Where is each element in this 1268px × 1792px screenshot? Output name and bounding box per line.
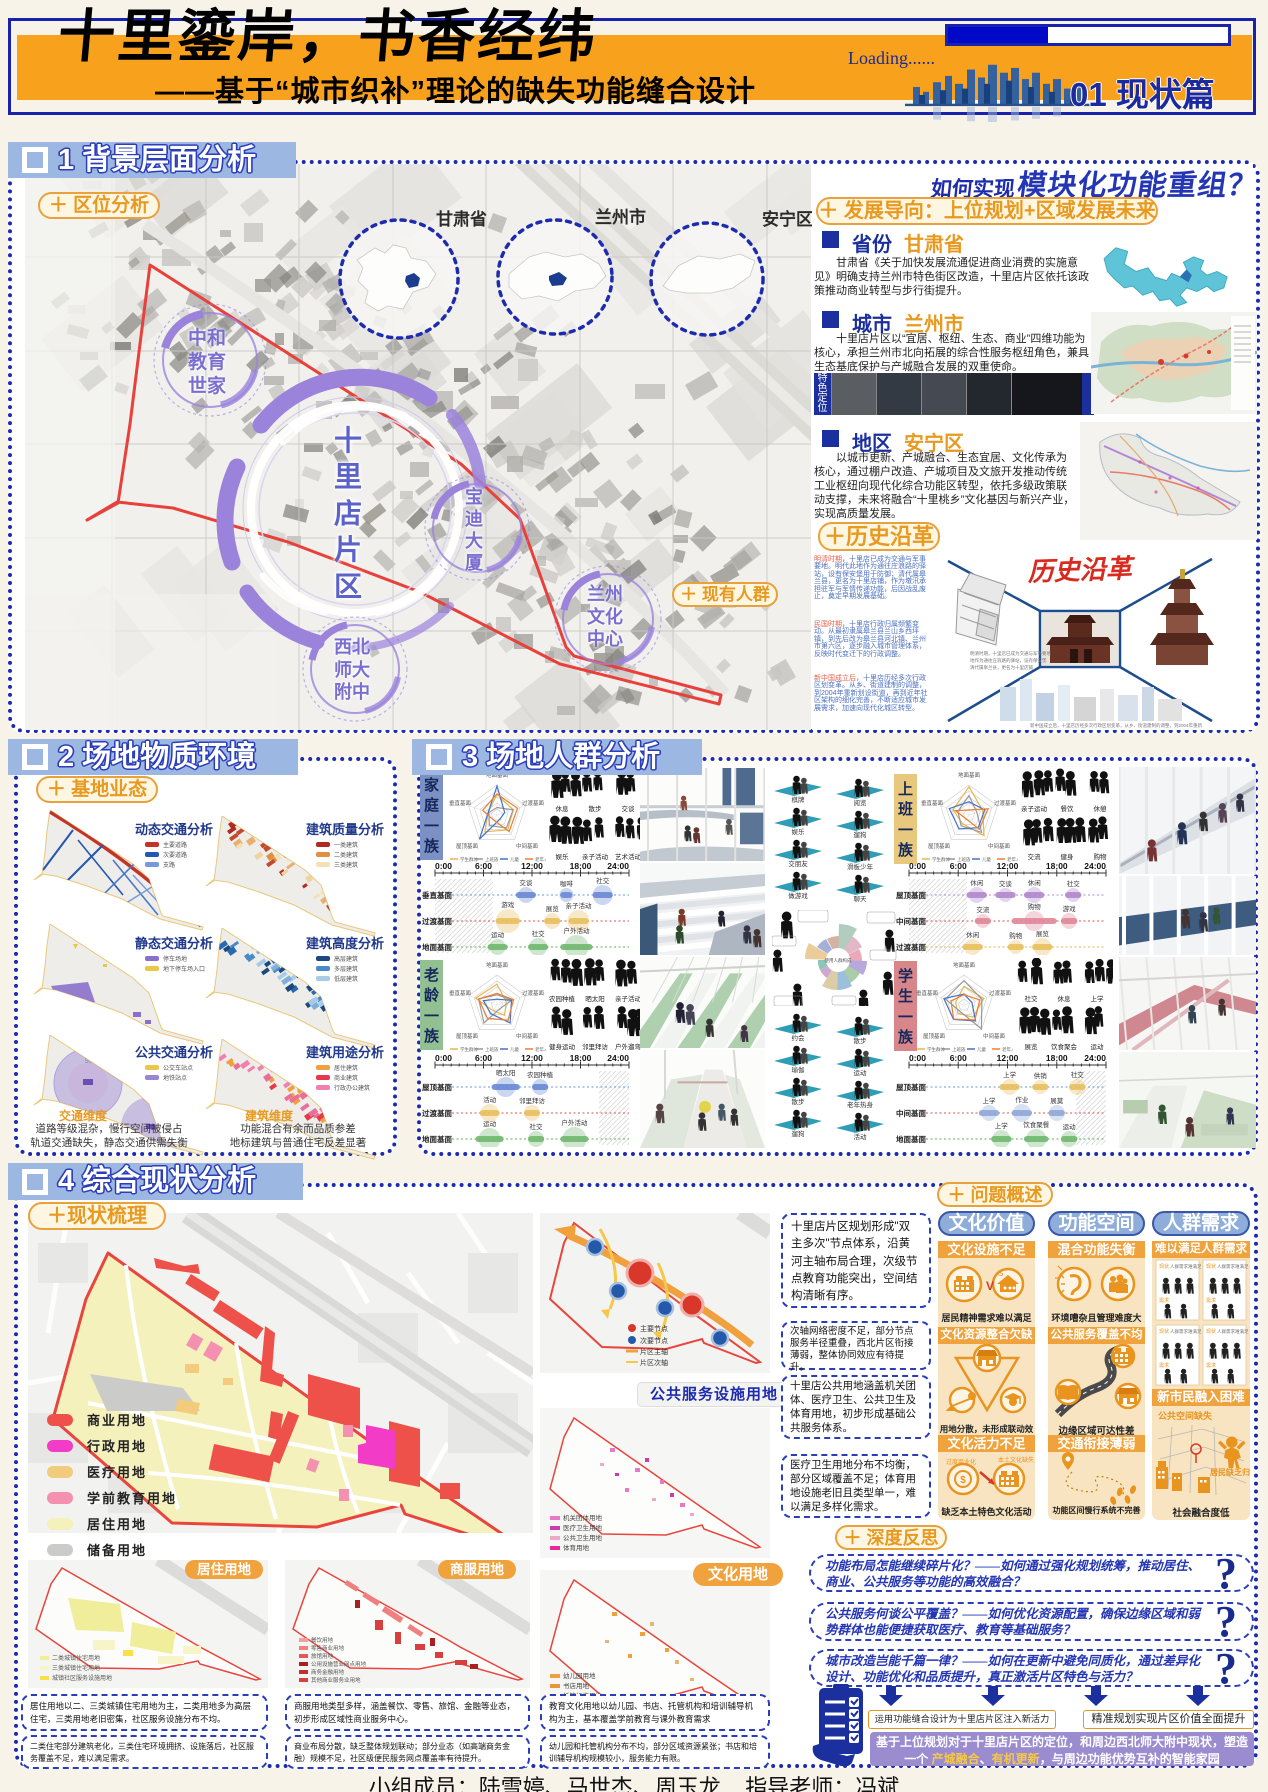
svg-text:中间基面: 中间基面 [896, 1108, 926, 1118]
svg-text:屋顶基面: 屋顶基面 [928, 842, 951, 850]
svg-text:晒太阳: 晒太阳 [585, 994, 605, 1003]
svg-text:屋顶基面: 屋顶基面 [422, 1082, 452, 1092]
svg-text:咖啡: 咖啡 [560, 879, 574, 888]
svg-text:人群需求难满足: 人群需求难满足 [1170, 1263, 1202, 1270]
svg-text:屋顶基面: 屋顶基面 [896, 890, 926, 900]
svg-text:地面基面: 地面基面 [958, 771, 981, 779]
svg-text:娱乐: 娱乐 [792, 827, 806, 836]
svg-text:活动: 活动 [854, 1132, 868, 1141]
svg-text:上学: 上学 [983, 1096, 997, 1105]
svg-text:片区主轴: 片区主轴 [640, 1347, 668, 1356]
svg-text:社交: 社交 [596, 876, 610, 885]
svg-text:12:00: 12:00 [997, 863, 1019, 871]
svg-text:聊天: 聊天 [854, 894, 868, 903]
svg-text:亲子活动: 亲子活动 [582, 852, 609, 861]
svg-text:购物: 购物 [1009, 931, 1023, 940]
svg-text:社交: 社交 [1025, 994, 1039, 1003]
svg-text:V: V [986, 1279, 994, 1293]
svg-text:中间基面: 中间基面 [516, 1032, 539, 1040]
svg-text:过渡基面: 过渡基面 [994, 799, 1017, 807]
svg-text:垂直基面: 垂直基面 [449, 799, 472, 807]
svg-text:次要节点: 次要节点 [640, 1336, 668, 1345]
svg-text:休憩: 休憩 [1094, 804, 1108, 813]
svg-text:垂直基面: 垂直基面 [422, 890, 452, 900]
svg-text:24:00: 24:00 [607, 1055, 629, 1063]
svg-text:运动: 运动 [483, 1120, 497, 1128]
svg-text:邻里拜访: 邻里拜访 [582, 1042, 609, 1051]
svg-text:500m: 500m [149, 1101, 164, 1107]
svg-text:使用人群构成: 使用人群构成 [825, 957, 852, 964]
svg-text:散步: 散步 [854, 1036, 868, 1045]
svg-text:24:00: 24:00 [1084, 863, 1106, 871]
svg-text:垂直基面: 垂直基面 [921, 799, 944, 807]
svg-text:6:00: 6:00 [950, 1055, 967, 1063]
svg-text:中间基面: 中间基面 [516, 842, 539, 850]
svg-text:过渡基面: 过渡基面 [522, 989, 545, 997]
svg-text:过渡基面: 过渡基面 [422, 1108, 452, 1118]
svg-text:过渡基面: 过渡基面 [896, 942, 926, 952]
svg-text:户外遛弯: 户外遛弯 [615, 1042, 642, 1051]
svg-text:阅览: 阅览 [854, 798, 868, 807]
svg-text:散步: 散步 [792, 1097, 806, 1106]
svg-text:老年人: 老年人 [1002, 1046, 1013, 1053]
svg-text:垂直基面: 垂直基面 [449, 989, 472, 997]
svg-text:瑜伽: 瑜伽 [792, 1065, 805, 1074]
svg-text:屋顶基面: 屋顶基面 [896, 1082, 926, 1092]
svg-text:活动: 活动 [483, 1095, 497, 1104]
svg-text:0:00: 0:00 [435, 863, 452, 871]
svg-text:过度商业化: 过度商业化 [946, 1458, 976, 1466]
svg-text:遛狗: 遛狗 [792, 1129, 806, 1138]
svg-text:人群需求难满足: 人群需求难满足 [1170, 1328, 1202, 1335]
svg-text:运动: 运动 [854, 1069, 868, 1077]
svg-text:$: $ [960, 1475, 966, 1486]
svg-text:中间基面: 中间基面 [988, 842, 1011, 850]
svg-text:购物: 购物 [1028, 902, 1042, 911]
svg-text:上班族: 上班族 [485, 1046, 499, 1053]
svg-text:上学: 上学 [1091, 994, 1105, 1003]
svg-text:12:00: 12:00 [997, 1055, 1019, 1063]
svg-text:展莫: 展莫 [1050, 1096, 1064, 1105]
svg-text:18:00: 18:00 [570, 1055, 592, 1063]
svg-text:书店用地: 书店用地 [563, 1681, 590, 1690]
svg-text:晒太阳: 晒太阳 [496, 1068, 516, 1077]
svg-text:18:00: 18:00 [1046, 1055, 1068, 1063]
svg-text:棋牌: 棋牌 [792, 795, 806, 804]
svg-text:中间基面: 中间基面 [983, 1032, 1006, 1040]
svg-text:公用设施营业网点用地: 公用设施营业网点用地 [311, 1660, 367, 1668]
svg-text:上学: 上学 [1003, 1070, 1017, 1079]
svg-text:上班族: 上班族 [952, 1046, 966, 1053]
svg-text:屋顶基面: 屋顶基面 [456, 842, 479, 850]
svg-text:游戏: 游戏 [501, 900, 515, 909]
svg-text:农园种植: 农园种植 [549, 994, 576, 1003]
svg-text:上班族: 上班族 [485, 856, 499, 863]
svg-text:儿童: 儿童 [977, 1046, 986, 1053]
svg-text:6:00: 6:00 [475, 1055, 492, 1063]
svg-text:亲子活动: 亲子活动 [566, 901, 593, 910]
svg-text:0:00: 0:00 [435, 1055, 452, 1063]
svg-text:现状: 现状 [1159, 1263, 1169, 1270]
svg-text:幼儿园用地: 幼儿园用地 [563, 1671, 596, 1680]
svg-text:休闲: 休闲 [970, 878, 983, 887]
svg-text:滑板少年: 滑板少年 [847, 862, 874, 871]
svg-text:公共卫生用地: 公共卫生用地 [563, 1533, 603, 1542]
svg-text:24:00: 24:00 [607, 863, 629, 871]
svg-text:机关团体用地: 机关团体用地 [563, 1513, 603, 1522]
svg-text:运动: 运动 [491, 931, 505, 939]
svg-text:健身: 健身 [1061, 852, 1075, 861]
svg-text:屋顶基面: 屋顶基面 [456, 1032, 479, 1040]
svg-text:遛狗: 遛狗 [854, 830, 868, 839]
svg-text:需求: 需求 [1206, 1362, 1216, 1369]
svg-text:垂直基面: 垂直基面 [916, 989, 939, 997]
svg-text:交谈: 交谈 [999, 879, 1013, 888]
svg-text:人群需求难满足: 人群需求难满足 [1217, 1263, 1249, 1270]
svg-text:约会: 约会 [792, 1033, 806, 1042]
svg-text:农园种植: 农园种植 [527, 1070, 554, 1079]
svg-text:户外活动: 户外活动 [561, 1118, 588, 1127]
svg-text:社交: 社交 [1071, 1070, 1085, 1079]
svg-text:屋顶基面: 屋顶基面 [923, 1032, 946, 1040]
svg-text:500m: 500m [85, 1059, 100, 1065]
svg-text:交谈: 交谈 [622, 804, 636, 813]
svg-text:现状: 现状 [1206, 1263, 1216, 1270]
svg-text:老年人: 老年人 [535, 1046, 546, 1053]
svg-text:三类城镇住宅用地: 三类城镇住宅用地 [52, 1664, 100, 1672]
svg-text:6:00: 6:00 [475, 863, 492, 871]
svg-text:休闲: 休闲 [1028, 878, 1041, 887]
svg-text:供销: 供销 [1034, 1071, 1048, 1080]
svg-text:餐饮用地: 餐饮用地 [311, 1636, 334, 1644]
svg-text:户外活动: 户外活动 [564, 926, 591, 935]
svg-text:地面基面: 地面基面 [896, 1134, 926, 1144]
svg-text:亲子运动: 亲子运动 [1021, 804, 1048, 813]
svg-text:过渡基面: 过渡基面 [422, 916, 452, 926]
svg-text:18:00: 18:00 [1046, 863, 1068, 871]
svg-text:老年人: 老年人 [535, 856, 546, 863]
svg-text:儿童: 儿童 [982, 856, 991, 863]
svg-text:交朋友: 交朋友 [788, 859, 808, 868]
svg-text:儿童: 儿童 [510, 856, 519, 863]
svg-text:现状: 现状 [1159, 1328, 1169, 1335]
svg-text:休闲: 休闲 [966, 930, 979, 939]
svg-text:散步: 散步 [589, 804, 603, 813]
svg-text:S: S [998, 1269, 1003, 1278]
svg-text:运动: 运动 [1091, 1043, 1105, 1051]
svg-text:社交: 社交 [1067, 879, 1081, 888]
svg-text:地面基面: 地面基面 [422, 942, 452, 952]
svg-text:城镇社区服务设施用地: 城镇社区服务设施用地 [52, 1674, 112, 1682]
svg-text:现状: 现状 [1206, 1328, 1216, 1335]
svg-text:0:00: 0:00 [909, 1055, 926, 1063]
svg-text:交谈: 交谈 [519, 878, 533, 887]
svg-text:需求: 需求 [1159, 1362, 1169, 1369]
svg-text:地面基面: 地面基面 [486, 961, 509, 969]
svg-text:上班族: 上班族 [957, 856, 971, 863]
svg-text:购物: 购物 [1094, 852, 1108, 861]
svg-text:商务金融用地: 商务金融用地 [311, 1668, 345, 1676]
svg-text:展览: 展览 [1025, 1042, 1039, 1051]
svg-text:运动: 运动 [1063, 1123, 1077, 1131]
svg-text:儿童: 儿童 [510, 1046, 519, 1053]
svg-text:12:00: 12:00 [521, 863, 543, 871]
svg-text:18:00: 18:00 [570, 863, 592, 871]
svg-text:健身运动: 健身运动 [549, 1042, 576, 1051]
svg-text:展览: 展览 [1036, 929, 1050, 938]
svg-text:邻里拜访: 邻里拜访 [519, 1096, 546, 1105]
svg-text:作业: 作业 [1015, 1095, 1029, 1104]
svg-text:社交: 社交 [530, 1122, 544, 1131]
svg-text:做游戏: 做游戏 [788, 891, 808, 900]
svg-text:地面基面: 地面基面 [422, 1134, 452, 1144]
svg-text:0:00: 0:00 [909, 863, 926, 871]
svg-text:明清时期，十里店已成为交通与军事要地: 明清时期，十里店已成为交通与军事要地 [970, 650, 1051, 657]
svg-text:二类城镇住宅用地: 二类城镇住宅用地 [52, 1654, 100, 1662]
svg-text:交流: 交流 [1028, 852, 1042, 861]
svg-text:历史沿革: 历史沿革 [1026, 554, 1136, 587]
svg-text:居民缺乏归属感: 居民缺乏归属感 [1210, 1467, 1250, 1477]
svg-text:餐饮: 餐饮 [1061, 804, 1075, 813]
svg-text:新中国成立后，十里店历经多次行政区划变革，从乡、街道建制的调: 新中国成立后，十里店历经多次行政区划变革，从乡、街道建制的调整，到2004年重新 [1030, 722, 1203, 729]
svg-text:体育用地: 体育用地 [563, 1543, 590, 1552]
svg-text:本土文化缺失: 本土文化缺失 [998, 1456, 1034, 1464]
svg-text:休息: 休息 [556, 804, 570, 813]
svg-text:6:00: 6:00 [950, 863, 967, 871]
svg-text:零售商业用地: 零售商业用地 [311, 1644, 345, 1652]
svg-text:交流: 交流 [976, 905, 990, 914]
svg-text:清代属皋兰县，更名为十里店铺: 清代属皋兰县，更名为十里店铺 [970, 664, 1033, 671]
svg-text:上学: 上学 [995, 1121, 1009, 1130]
svg-text:其他商业服务业用地: 其他商业服务业用地 [311, 1676, 361, 1684]
svg-text:主要节点: 主要节点 [640, 1324, 668, 1333]
svg-text:片区次轴: 片区次轴 [640, 1358, 668, 1367]
svg-text:24:00: 24:00 [1084, 1055, 1106, 1063]
svg-text:过渡基面: 过渡基面 [989, 989, 1012, 997]
svg-text:地面基面: 地面基面 [953, 961, 976, 969]
svg-text:医疗卫生用地: 医疗卫生用地 [563, 1523, 603, 1532]
svg-text:人群需求难满足: 人群需求难满足 [1217, 1328, 1249, 1335]
svg-text:艺术活动: 艺术活动 [615, 852, 642, 861]
svg-text:游戏: 游戏 [1063, 904, 1077, 913]
svg-text:需求: 需求 [1206, 1297, 1216, 1304]
svg-text:12:00: 12:00 [521, 1055, 543, 1063]
svg-text:社交: 社交 [532, 929, 546, 938]
svg-text:展览: 展览 [546, 904, 560, 913]
svg-text:亲子活动: 亲子活动 [615, 994, 642, 1003]
svg-text:休息: 休息 [1058, 994, 1072, 1003]
svg-text:老年热身: 老年热身 [847, 1100, 874, 1109]
svg-text:饮食聚餐: 饮食聚餐 [1023, 1120, 1049, 1129]
svg-text:需求: 需求 [1159, 1297, 1169, 1304]
svg-text:过渡基面: 过渡基面 [522, 799, 545, 807]
svg-text:旅馆用地: 旅馆用地 [311, 1652, 334, 1660]
svg-text:饮食聚会: 饮食聚会 [1051, 1042, 1078, 1051]
svg-text:娱乐: 娱乐 [556, 852, 570, 861]
svg-text:中间基面: 中间基面 [896, 916, 926, 926]
svg-text:地作为通往庄浪路的驿站，设有保安堡: 地作为通往庄浪路的驿站，设有保安堡 [970, 657, 1047, 664]
svg-text:老年人: 老年人 [1007, 856, 1018, 863]
